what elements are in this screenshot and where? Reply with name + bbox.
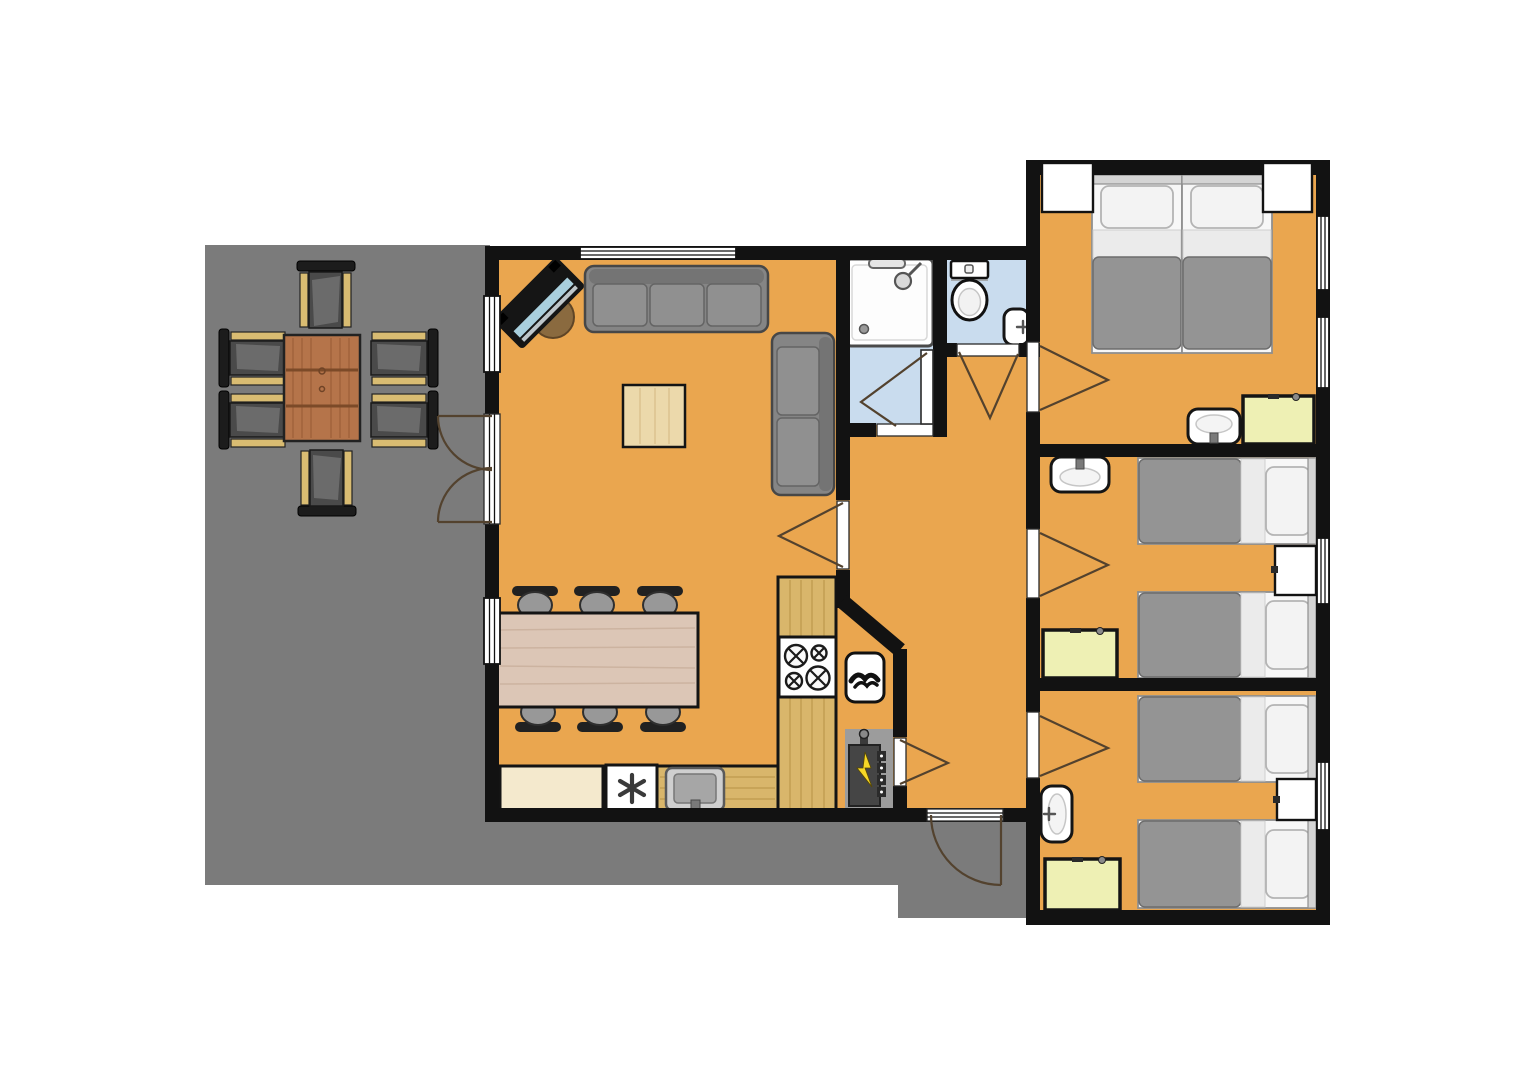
- toilet-hand-basin: [1004, 309, 1029, 345]
- wall-living-top: [485, 246, 1040, 260]
- window-bedroom1-right-2: [1317, 317, 1329, 388]
- outdoor-chair-top: [297, 261, 355, 328]
- bed-single: [1138, 696, 1316, 782]
- dishwasher: [606, 765, 657, 812]
- wall-wing-left-4: [1026, 778, 1040, 925]
- outdoor-chair-right-upper: [371, 329, 438, 387]
- window-bedroom1-top-right: [1263, 163, 1312, 212]
- window-living-left-2: [484, 598, 500, 664]
- entrance-pad: [898, 820, 1040, 918]
- bed-single: [1092, 175, 1182, 353]
- washbasin: [1051, 457, 1109, 492]
- wall-closet-right-lower: [893, 786, 907, 822]
- washbasin: [1188, 409, 1240, 444]
- dining-table: [497, 613, 698, 707]
- wardrobe: [1045, 857, 1120, 911]
- outdoor-chair-bottom: [298, 450, 356, 516]
- shower: [846, 259, 933, 346]
- sofa-three-seat: [585, 266, 768, 332]
- wall-living-hall-upper: [836, 246, 850, 500]
- window-bedroom1-right-1: [1317, 216, 1329, 290]
- wall-wing-left-3: [1026, 598, 1040, 712]
- outdoor-chair-right-lower: [371, 391, 438, 449]
- outdoor-chair-left-upper: [219, 329, 286, 387]
- window-bedroom1-top-left: [1042, 163, 1093, 212]
- wall-wing-bottom: [1026, 910, 1330, 925]
- wall-toilet-bottom-left: [940, 343, 957, 357]
- wall-bedroom1-2: [1040, 444, 1316, 457]
- wall-bedroom2-3: [1040, 678, 1316, 691]
- wardrobe: [1243, 394, 1314, 445]
- window-living-left-1: [484, 296, 500, 372]
- wall-wing-left-1: [1026, 160, 1040, 342]
- ventilation-unit: [846, 653, 884, 702]
- stove: [779, 637, 836, 697]
- coffee-table: [623, 385, 685, 447]
- wall-wing-left-2: [1026, 412, 1040, 529]
- bed-single: [1138, 592, 1316, 678]
- wardrobe: [1043, 628, 1117, 679]
- sofa-two-seat: [772, 333, 834, 495]
- wall-shower-toilet: [933, 246, 947, 437]
- wall-shower-bottom: [836, 423, 876, 437]
- window-living-top: [580, 247, 736, 259]
- washbasin: [1041, 786, 1072, 842]
- outdoor-chair-left-lower: [219, 391, 286, 449]
- floor-plan: Holiday home floor plan: [0, 0, 1536, 1090]
- drain-icon: [860, 325, 869, 334]
- window-bedroom2-right: [1271, 538, 1329, 604]
- toilet: [951, 261, 988, 320]
- outdoor-table: [284, 335, 360, 441]
- bed-single: [1138, 458, 1316, 544]
- bed-single: [1182, 175, 1272, 353]
- floor-plan-canvas: Holiday home floor plan: [0, 0, 1536, 1090]
- bed-single: [1138, 820, 1316, 908]
- kitchen-counter-cream: [500, 766, 603, 812]
- shower-room: [846, 259, 933, 346]
- wall-closet-right-upper: [893, 649, 907, 737]
